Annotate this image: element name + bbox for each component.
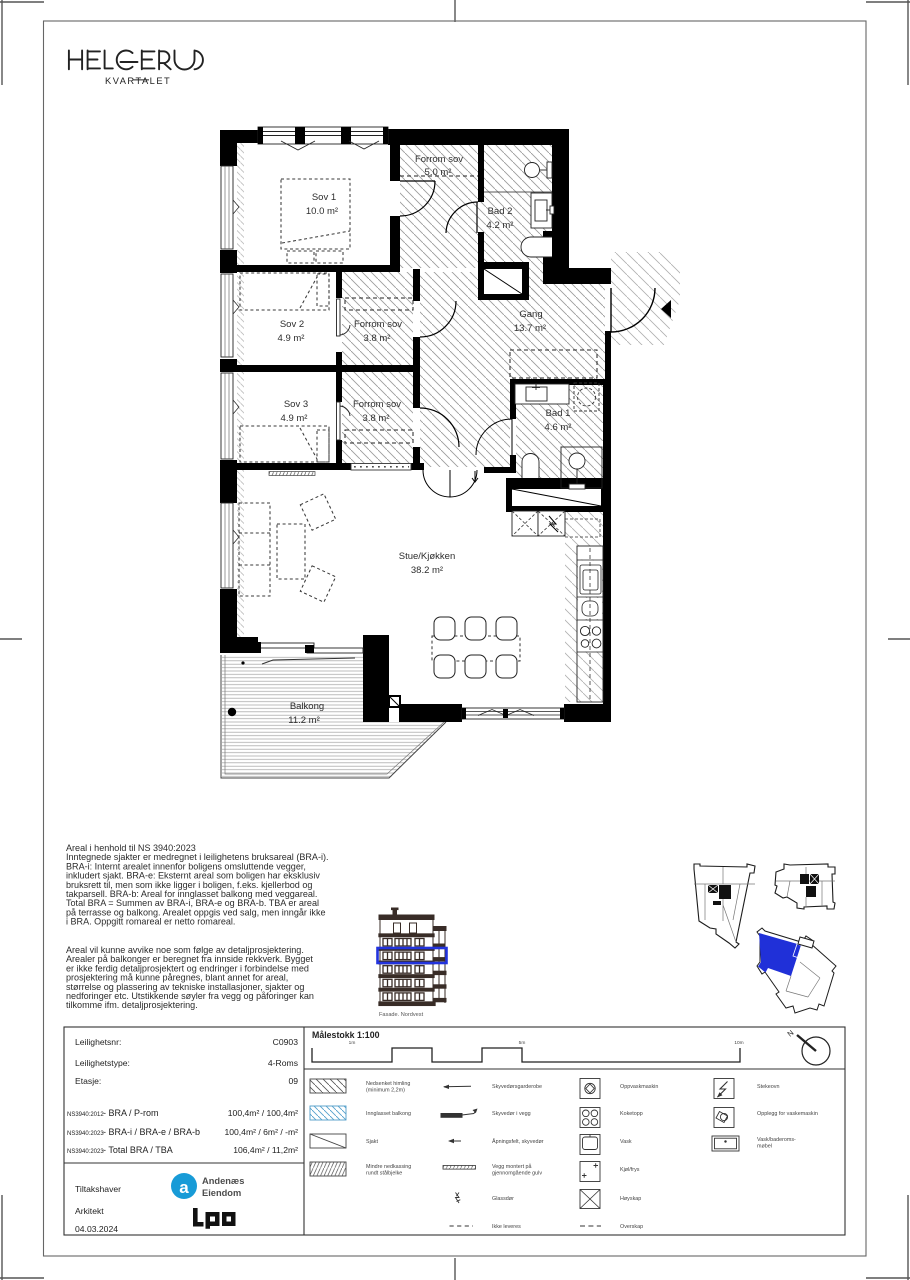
svg-text:møbel: møbel	[757, 1144, 772, 1150]
svg-text:Arkitekt: Arkitekt	[75, 1206, 104, 1216]
svg-text:Vask/baderoms-: Vask/baderoms-	[757, 1137, 796, 1143]
svg-text:i BRA. Oppgitt romareal er net: i BRA. Oppgitt romareal er netto romarea…	[66, 917, 235, 927]
svg-text:Høyskap: Høyskap	[620, 1196, 641, 1202]
svg-text:NS3940:2023: NS3940:2023	[67, 1131, 104, 1137]
svg-text:Andenæs: Andenæs	[202, 1176, 244, 1186]
svg-text:Tiltakshaver: Tiltakshaver	[75, 1184, 121, 1194]
svg-text:4.9 m²: 4.9 m²	[278, 333, 305, 344]
svg-text:Innglasset balkong: Innglasset balkong	[366, 1111, 411, 1117]
svg-text:4-Roms: 4-Roms	[268, 1058, 298, 1068]
svg-text:10m: 10m	[734, 1040, 743, 1046]
svg-text:NS3940:2023: NS3940:2023	[67, 1149, 104, 1155]
svg-text:tilkomme ifm. detaljprosjekter: tilkomme ifm. detaljprosjektering.	[66, 1000, 198, 1010]
svg-text:- BRA-i / BRA-e / BRA-b: - BRA-i / BRA-e / BRA-b	[103, 1127, 200, 1137]
svg-text:Eiendom: Eiendom	[202, 1188, 241, 1198]
svg-text:Gang: Gang	[519, 309, 542, 320]
svg-text:NS3940:2012: NS3940:2012	[67, 1112, 104, 1118]
svg-text:100,4m² / 100,4m²: 100,4m² / 100,4m²	[228, 1108, 298, 1118]
svg-text:Målestokk 1:100: Målestokk 1:100	[312, 1030, 380, 1040]
svg-text:1m: 1m	[349, 1040, 356, 1046]
svg-text:Mindre nedkassing: Mindre nedkassing	[366, 1164, 411, 1170]
svg-text:10.0 m²: 10.0 m²	[306, 206, 338, 217]
svg-text:rundt stålbjelke: rundt stålbjelke	[366, 1170, 402, 1177]
svg-text:Bad 1: Bad 1	[546, 408, 571, 419]
svg-text:38.2 m²: 38.2 m²	[411, 565, 443, 576]
svg-text:3.8 m²: 3.8 m²	[363, 413, 390, 424]
svg-text:Opplegg for vaskemaskin: Opplegg for vaskemaskin	[757, 1111, 818, 1117]
svg-text:Ikke leveres: Ikke leveres	[492, 1224, 521, 1230]
svg-text:Balkong: Balkong	[290, 701, 324, 712]
svg-text:Sov 3: Sov 3	[284, 399, 308, 410]
svg-text:Etasje:: Etasje:	[75, 1076, 101, 1086]
svg-text:Sov 1: Sov 1	[312, 192, 336, 203]
svg-text:(minimum 2,2m): (minimum 2,2m)	[366, 1088, 405, 1094]
svg-text:09: 09	[288, 1076, 298, 1086]
svg-text:Sjakt: Sjakt	[366, 1139, 378, 1145]
svg-text:Kjøl/frys: Kjøl/frys	[620, 1167, 640, 1173]
svg-text:Oppvaskmaskin: Oppvaskmaskin	[620, 1084, 658, 1090]
svg-text:Skyvedør i vegg: Skyvedør i vegg	[492, 1111, 531, 1117]
svg-text:Glassdør: Glassdør	[492, 1196, 514, 1202]
svg-text:Stue/Kjøkken: Stue/Kjøkken	[399, 551, 456, 562]
svg-text:Leilighetstype:: Leilighetstype:	[75, 1058, 130, 1068]
svg-text:13.7 m²: 13.7 m²	[514, 323, 546, 334]
svg-text:5m: 5m	[519, 1040, 526, 1046]
svg-text:KVARTALET: KVARTALET	[105, 76, 171, 86]
svg-text:Fasade. Nordvest: Fasade. Nordvest	[379, 1012, 424, 1018]
svg-text:gjennomgående gulv: gjennomgående gulv	[492, 1170, 542, 1177]
svg-text:4.2 m²: 4.2 m²	[487, 220, 514, 231]
svg-text:a: a	[179, 1178, 189, 1197]
svg-text:Vegg montert på: Vegg montert på	[492, 1163, 532, 1170]
svg-text:Overskap: Overskap	[620, 1224, 643, 1230]
svg-text:Forrom sov: Forrom sov	[415, 154, 463, 165]
svg-text:Forrom sov: Forrom sov	[353, 399, 401, 410]
svg-text:Sov 2: Sov 2	[280, 319, 304, 330]
svg-text:106,4m² / 11,2m²: 106,4m² / 11,2m²	[233, 1145, 298, 1155]
svg-text:04.03.2024: 04.03.2024	[75, 1224, 118, 1234]
svg-text:Skyvedørsgarderobe: Skyvedørsgarderobe	[492, 1084, 542, 1090]
svg-text:Koketopp: Koketopp	[620, 1111, 643, 1117]
svg-text:Vask: Vask	[620, 1139, 632, 1145]
svg-text:Bad 2: Bad 2	[488, 206, 513, 217]
svg-text:N: N	[786, 1028, 796, 1038]
svg-text:- BRA / P-rom: - BRA / P-rom	[103, 1108, 159, 1118]
svg-text:Stekeovn: Stekeovn	[757, 1084, 779, 1090]
svg-text:4.6 m²: 4.6 m²	[545, 422, 572, 433]
svg-text:100,4m² / 6m² / -m²: 100,4m² / 6m² / -m²	[224, 1127, 298, 1137]
svg-text:C0903: C0903	[273, 1037, 299, 1047]
svg-text:Leilighetsnr:: Leilighetsnr:	[75, 1037, 121, 1047]
svg-text:3.8 m²: 3.8 m²	[364, 333, 391, 344]
svg-text:11.2 m²: 11.2 m²	[288, 715, 320, 726]
svg-text:4.9 m²: 4.9 m²	[281, 413, 308, 424]
svg-text:5.0 m²: 5.0 m²	[425, 167, 452, 178]
svg-text:- Total BRA / TBA: - Total BRA / TBA	[103, 1145, 173, 1155]
svg-text:Forrom sov: Forrom sov	[354, 319, 402, 330]
svg-text:Åpningsfelt, skyvedør: Åpningsfelt, skyvedør	[492, 1138, 544, 1145]
svg-text:Nedsenket himling: Nedsenket himling	[366, 1081, 410, 1087]
